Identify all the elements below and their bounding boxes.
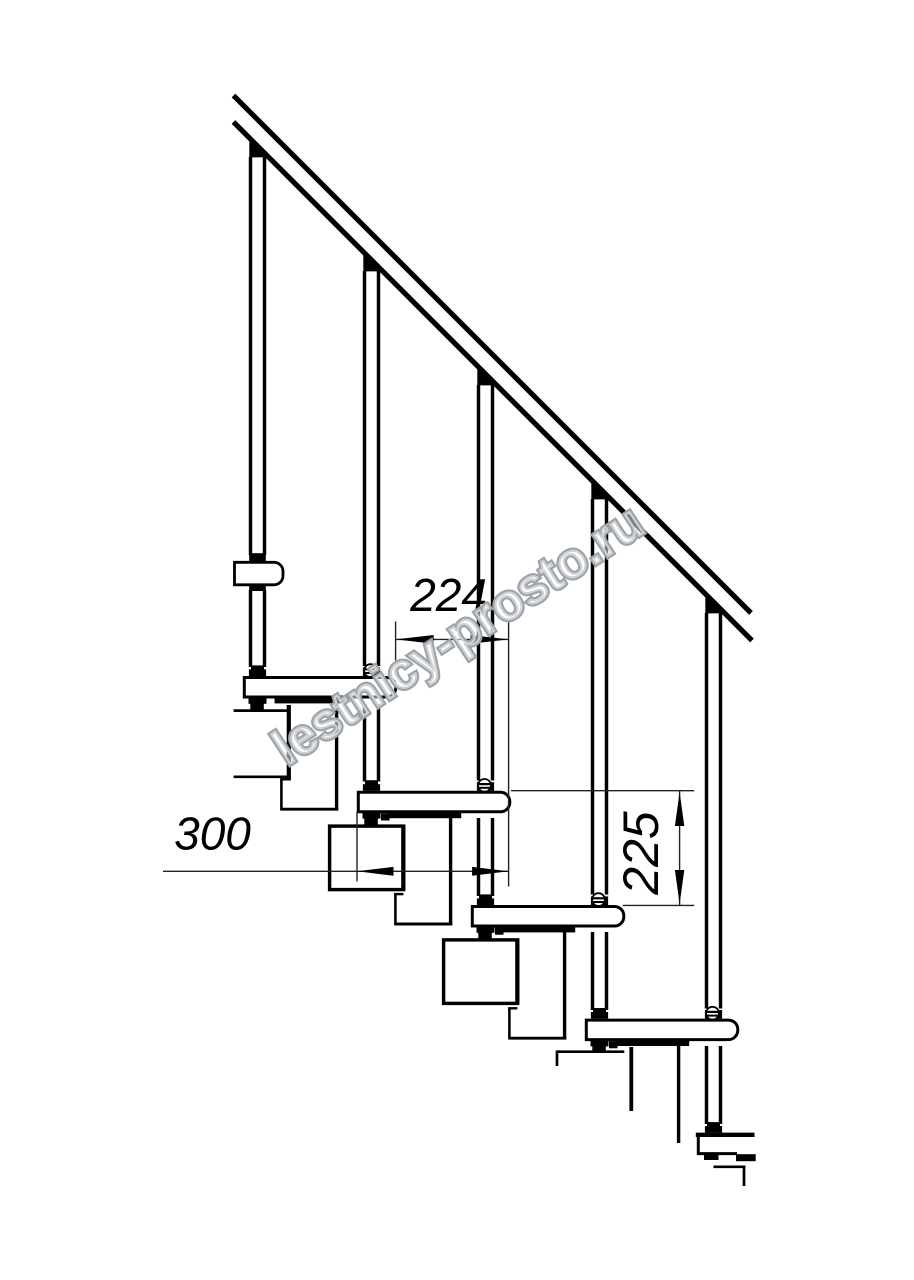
svg-text:225: 225 — [613, 811, 669, 896]
svg-text:300: 300 — [174, 808, 251, 860]
